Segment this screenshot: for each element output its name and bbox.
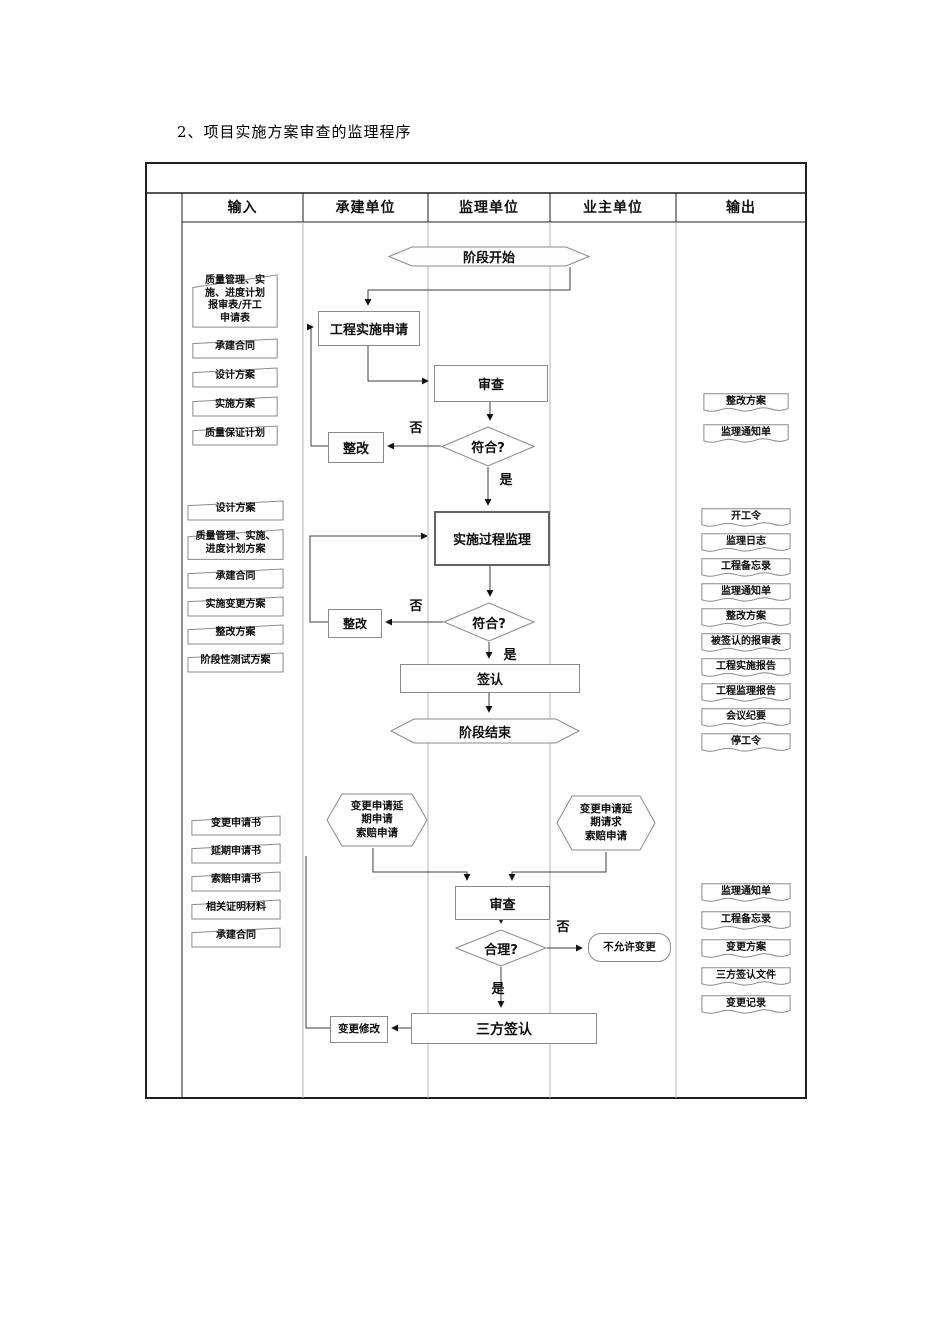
node-process-supervision: 实施过程监理 <box>434 511 550 566</box>
lane-header-contractor: 承建单位 <box>303 194 428 222</box>
output-doc: 开工令 <box>701 508 791 529</box>
input-doc: 相关证明材料 <box>191 899 281 920</box>
input-doc: 质量保证计划 <box>192 425 278 446</box>
input-group-2: 设计方案 质量管理、实施、 进度计划方案 承建合同 实施变更方案 整改方案 <box>187 500 284 673</box>
output-group-1: 整改方案 监理通知单 <box>703 393 789 445</box>
edge-label-no-3: 否 <box>551 916 575 935</box>
node-contractor-change-request: 变更申请延 期申请 索赔申请 <box>326 792 428 848</box>
node-check-1: 符合? <box>441 426 535 467</box>
node-rework-1: 整改 <box>328 432 384 463</box>
output-doc: 整改方案 <box>701 608 791 629</box>
input-doc: 阶段性测试方案 <box>187 652 284 673</box>
input-doc: 承建合同 <box>187 568 284 589</box>
output-group-2: 开工令 监理日志 工程备忘录 监理通知单 整改方案 <box>701 508 791 754</box>
edge-label-yes-2: 是 <box>498 644 522 663</box>
output-doc: 工程实施报告 <box>701 658 791 679</box>
input-doc: 实施方案 <box>192 396 278 417</box>
edge-label-no-1: 否 <box>404 417 428 436</box>
input-doc: 延期申请书 <box>191 843 281 864</box>
output-doc: 监理通知单 <box>701 583 791 604</box>
input-group-1: 质量管理、实 施、进度计划 报审表/开工 申请表 承建合同 设计方案 实施方案 … <box>192 272 278 446</box>
output-doc: 监理通知单 <box>701 883 791 904</box>
edge-label-yes-1: 是 <box>494 469 518 488</box>
lane-header-owner: 业主单位 <box>550 194 676 222</box>
output-doc: 变更方案 <box>701 939 791 960</box>
edge-label-yes-3: 是 <box>486 978 510 997</box>
node-rework-2: 整改 <box>328 609 382 638</box>
output-doc: 会议纪要 <box>701 708 791 729</box>
input-doc: 变更申请书 <box>191 815 281 836</box>
output-doc: 变更记录 <box>701 995 791 1016</box>
input-doc: 索赔申请书 <box>191 871 281 892</box>
node-owner-change-request: 变更申请延 期请求 索赔申请 <box>556 794 656 852</box>
input-doc: 实施变更方案 <box>187 596 284 617</box>
input-doc: 质量管理、实施、 进度计划方案 <box>187 528 284 561</box>
output-doc: 工程备忘录 <box>701 558 791 579</box>
output-doc: 停工令 <box>701 733 791 754</box>
input-group-3: 变更申请书 延期申请书 索赔申请书 相关证明材料 承建合同 <box>191 815 281 948</box>
node-stage-end: 阶段结束 <box>390 718 580 744</box>
input-doc: 承建合同 <box>192 338 278 359</box>
node-reject-change: 不允许变更 <box>588 933 671 962</box>
lane-header-output: 输出 <box>676 194 806 222</box>
output-doc: 被签认的报审表 <box>701 633 791 654</box>
input-doc: 设计方案 <box>192 367 278 388</box>
output-doc: 工程备忘录 <box>701 911 791 932</box>
input-doc: 质量管理、实 施、进度计划 报审表/开工 申请表 <box>192 272 278 330</box>
node-review-2: 审查 <box>455 886 550 920</box>
output-doc: 监理通知单 <box>703 424 789 445</box>
output-doc: 整改方案 <box>703 393 789 414</box>
node-stage-start: 阶段开始 <box>388 246 590 267</box>
node-check-2: 符合? <box>443 602 535 642</box>
node-change-modify: 变更修改 <box>330 1016 388 1043</box>
edge-label-no-2: 否 <box>404 595 428 614</box>
output-doc: 监理日志 <box>701 533 791 554</box>
output-doc: 工程监理报告 <box>701 683 791 704</box>
page: 2、项目实施方案审查的监理程序 <box>0 0 950 1344</box>
input-doc: 承建合同 <box>191 927 281 948</box>
lane-header-input: 输入 <box>182 194 303 222</box>
node-impl-request: 工程实施申请 <box>318 311 420 346</box>
output-doc: 三方签认文件 <box>701 967 791 988</box>
node-review-1: 审查 <box>434 365 548 402</box>
input-doc: 设计方案 <box>187 500 284 521</box>
node-sign: 签认 <box>400 664 580 693</box>
lane-header-supervisor: 监理单位 <box>428 194 550 222</box>
node-check-3: 合理? <box>455 929 547 967</box>
input-doc: 整改方案 <box>187 624 284 645</box>
node-tri-party-sign: 三方签认 <box>411 1013 597 1044</box>
output-group-3: 监理通知单 工程备忘录 变更方案 三方签认文件 变更记录 <box>701 883 791 1016</box>
